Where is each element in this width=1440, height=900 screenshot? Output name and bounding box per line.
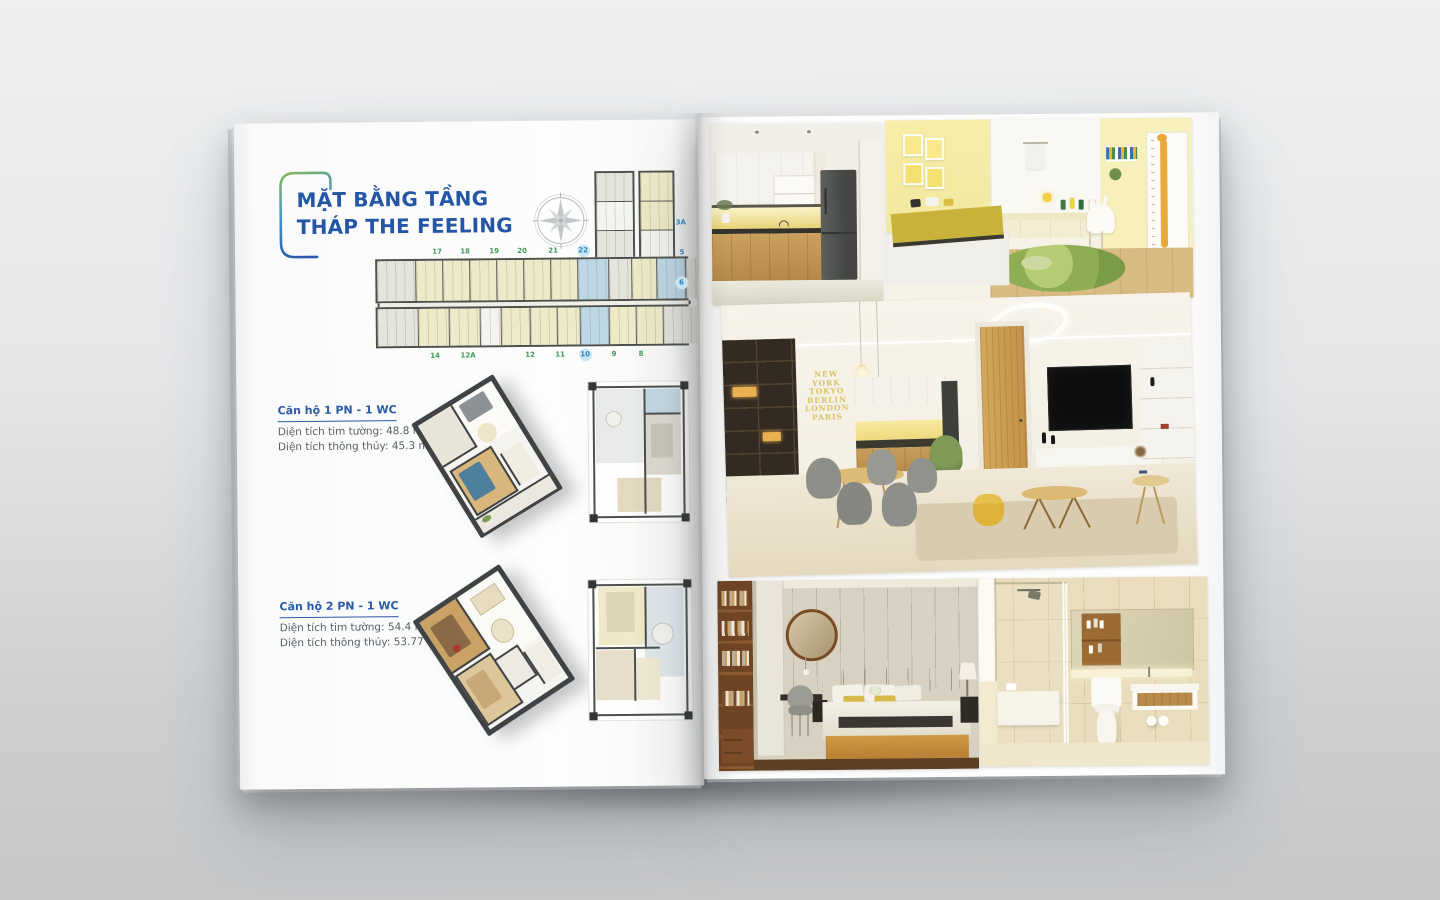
- pillow: [925, 197, 939, 207]
- bed-symbol: [606, 592, 634, 632]
- vase: [722, 213, 730, 223]
- floor-plan-strip-top: [375, 256, 688, 303]
- unit-2-name: Căn hộ 2 PN - 1 WC: [279, 599, 398, 618]
- bottle: [1093, 619, 1097, 628]
- right-page: NEW YORK TOKYO BERLIN LONDON PARIS: [698, 112, 1225, 779]
- wall-frame: [904, 163, 924, 185]
- pillow: [944, 199, 954, 207]
- unit-number: 5: [673, 246, 691, 259]
- faucet: [778, 220, 788, 226]
- faucet: [1149, 667, 1151, 677]
- wood-bed-base: [825, 734, 968, 758]
- wall-frame: [925, 167, 945, 189]
- bed-symbol: [651, 424, 673, 458]
- yellow-pouf: [973, 493, 1004, 526]
- floor: [754, 757, 979, 771]
- unit-number-highlighted: 22: [577, 244, 590, 257]
- floor-plan-wing-right: [638, 170, 675, 258]
- shower-glass: [994, 581, 1069, 764]
- unit-number: 12A: [459, 349, 477, 362]
- unit-number-highlighted: 6: [675, 276, 688, 289]
- unit-number: 20: [513, 245, 531, 258]
- wall-shelves: [1137, 338, 1194, 459]
- books-row: [722, 691, 749, 706]
- unit-number: 19: [485, 245, 503, 258]
- plan-2d-2pn: [588, 579, 692, 720]
- brochure-book: MẶT BẰNG TẦNG THÁP THE FEELING: [223, 108, 1229, 794]
- giraffe-body: [1160, 139, 1168, 247]
- unit-number: 21: [544, 245, 562, 258]
- vase: [1041, 432, 1045, 443]
- toy-bottle: [1079, 200, 1084, 210]
- iso-render-1pn: [414, 367, 561, 548]
- unit-number: 12: [521, 349, 539, 362]
- bedroom2-area: [596, 650, 634, 700]
- left-page: MẶT BẰNG TẦNG THÁP THE FEELING: [234, 119, 704, 789]
- bunny-chair: [1087, 205, 1115, 234]
- bedside-lamp: [959, 662, 977, 679]
- unit-number: 9: [605, 348, 623, 361]
- ceiling-spot: [807, 130, 811, 133]
- refrigerator: [821, 170, 858, 281]
- photo-master-bedroom: [717, 579, 979, 771]
- page-title-line2: THÁP THE FEELING: [297, 212, 513, 241]
- bottle: [1089, 645, 1093, 653]
- wall-frame: [925, 138, 945, 160]
- page-title-line1: MẶT BẰNG TẦNG: [296, 185, 512, 214]
- hanging-shirt: [1026, 144, 1046, 170]
- ceiling-spot: [755, 131, 759, 134]
- drawer-unit: [721, 729, 753, 763]
- photo-kitchen: [711, 122, 884, 305]
- floor-plan-wing-left: [594, 171, 635, 259]
- bottle: [1098, 643, 1102, 652]
- pillow: [895, 685, 922, 701]
- unit-2-swatch: [279, 581, 392, 595]
- unit-1-swatch: [277, 386, 390, 400]
- unit-number: 8: [632, 348, 650, 361]
- toy-bottle: [1061, 200, 1066, 210]
- floor-plan: 17 18 19 20 21 22 3A 5 6 14 12A 12 11 10…: [234, 119, 698, 123]
- photo-kids-bedroom: [885, 118, 1194, 301]
- plan-2d-1pn: [588, 381, 689, 522]
- unit-number: 18: [456, 245, 474, 258]
- page-title: MẶT BẰNG TẦNG THÁP THE FEELING: [296, 185, 513, 241]
- dining-chair: [906, 457, 937, 493]
- table-symbol: [607, 412, 621, 426]
- pillow: [910, 199, 921, 208]
- bath-bench: [998, 691, 1060, 725]
- photo-bathroom: [978, 576, 1209, 766]
- unit-number: 11: [551, 349, 569, 362]
- unit-2-area-gross: Diện tích tim tường: 54.4 m²: [280, 620, 430, 636]
- wall-typography: NEW YORK TOKYO BERLIN LONDON PARIS: [800, 370, 853, 422]
- pendant-lamp: [856, 364, 866, 378]
- tv-screen: [1047, 365, 1133, 432]
- toy-bottle: [1070, 198, 1075, 209]
- doorway: [858, 141, 884, 282]
- bottle: [1100, 621, 1104, 629]
- bathroom-area: [634, 658, 660, 700]
- unit-number-highlighted: 10: [579, 348, 592, 361]
- table-symbol: [653, 624, 673, 644]
- wardrobe: [756, 580, 785, 755]
- books-row: [721, 590, 748, 605]
- vanity-drawer: [1137, 692, 1192, 706]
- base-cabinets: [712, 233, 825, 281]
- wall-frame: [903, 134, 923, 156]
- unit-number: 17: [428, 246, 446, 259]
- nightstand: [960, 696, 978, 723]
- living-room-area: [595, 389, 644, 463]
- iso-render-2pn: [413, 556, 573, 743]
- books-row: [722, 651, 749, 666]
- compass-icon: [530, 190, 591, 251]
- vanity-light: [1071, 669, 1192, 678]
- floor-plan-strip-bottom: [376, 304, 689, 348]
- dining-chair: [866, 449, 897, 485]
- bed-runner: [838, 716, 952, 728]
- scene-background: { "left_page": { "title_line1": "MẶT BẰN…: [0, 0, 1440, 900]
- dining-chair: [805, 457, 841, 499]
- bottle: [1086, 621, 1090, 629]
- unit-number: 14: [426, 350, 444, 363]
- unit-1-area-gross: Diện tích tim tường: 48.8 m²: [278, 424, 428, 440]
- photo-living-dining: NEW YORK TOKYO BERLIN LONDON PARIS: [721, 292, 1198, 577]
- bathroom-area: [643, 388, 680, 414]
- books-row: [722, 621, 749, 636]
- unit-1-area-net: Diện tích thông thủy: 45.3 m²: [278, 439, 433, 455]
- unit-1-name: Căn hộ 1 PN - 1 WC: [278, 403, 397, 422]
- towel: [1007, 683, 1017, 690]
- table-lamp: [1042, 193, 1051, 202]
- round-mirror: [785, 608, 837, 660]
- unit-number: 3A: [672, 216, 690, 229]
- floor: [980, 742, 1209, 767]
- book-shelf: [1106, 147, 1137, 160]
- vase: [1051, 435, 1055, 444]
